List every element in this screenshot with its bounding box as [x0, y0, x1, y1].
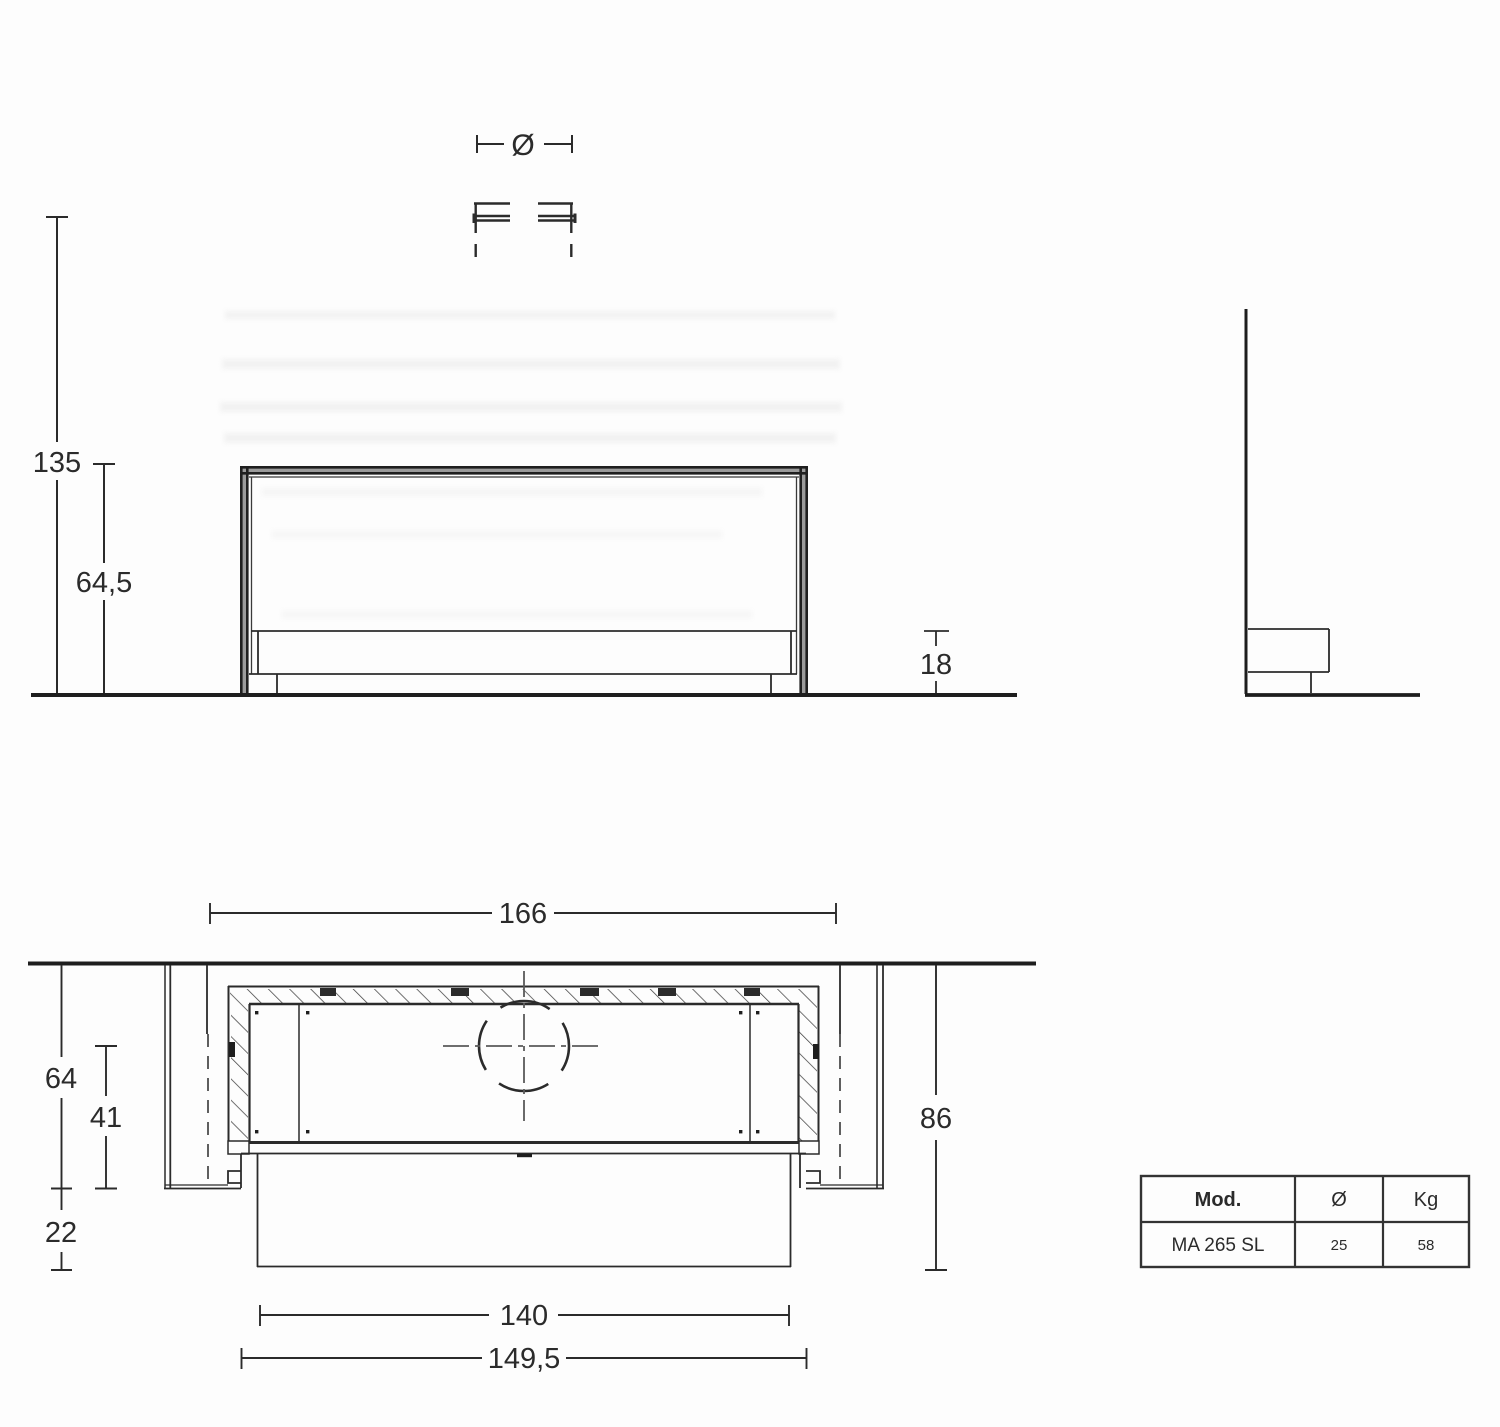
svg-text:166: 166 [499, 898, 547, 930]
svg-text:41: 41 [90, 1102, 122, 1134]
svg-text:140: 140 [500, 1300, 548, 1332]
svg-text:64: 64 [45, 1063, 77, 1095]
svg-text:Ø: Ø [1331, 1189, 1347, 1211]
svg-text:Ø: Ø [511, 129, 534, 162]
svg-text:Kg: Kg [1414, 1189, 1438, 1211]
svg-text:25: 25 [1331, 1237, 1348, 1254]
svg-text:MA 265 SL: MA 265 SL [1172, 1235, 1265, 1256]
svg-text:Mod.: Mod. [1195, 1189, 1242, 1211]
svg-text:149,5: 149,5 [488, 1343, 561, 1375]
svg-text:64,5: 64,5 [76, 567, 132, 599]
svg-text:86: 86 [920, 1103, 952, 1135]
svg-text:58: 58 [1418, 1237, 1435, 1254]
svg-text:22: 22 [45, 1217, 77, 1249]
svg-text:135: 135 [33, 447, 81, 479]
svg-text:18: 18 [920, 649, 952, 681]
